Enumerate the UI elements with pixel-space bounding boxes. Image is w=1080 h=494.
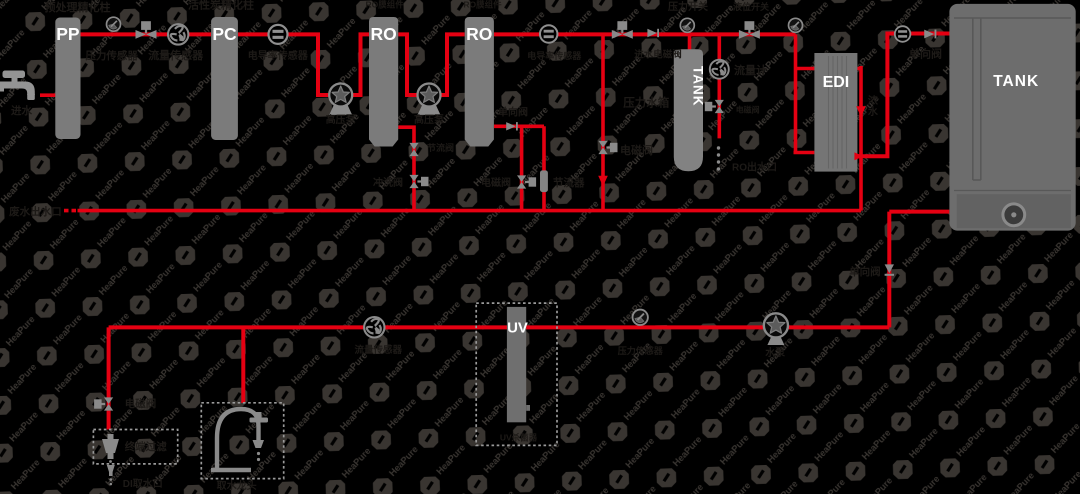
svg-text:终端过滤: 终端过滤 <box>125 440 167 453</box>
svg-text:EDI: EDI <box>823 74 850 91</box>
svg-text:压力水箱: 压力水箱 <box>623 96 669 110</box>
svg-text:电导率传感器: 电导率传感器 <box>527 50 582 61</box>
svg-text:压力传感器: 压力传感器 <box>618 345 664 356</box>
svg-text:高压泵: 高压泵 <box>326 113 357 126</box>
svg-text:单向阀: 单向阀 <box>909 47 942 61</box>
svg-text:液位开关: 液位开关 <box>733 1 769 12</box>
svg-text:高压泵: 高压泵 <box>414 113 445 126</box>
svg-text:进水电磁阀: 进水电磁阀 <box>634 49 682 61</box>
svg-text:TANK: TANK <box>993 73 1039 90</box>
svg-text:PC: PC <box>212 24 237 44</box>
svg-text:电导率传感器: 电导率传感器 <box>248 49 309 62</box>
svg-text:电磁阀: 电磁阀 <box>736 105 760 115</box>
svg-text:预处理精化柱: 预处理精化柱 <box>45 0 111 14</box>
svg-text:RO: RO <box>370 24 396 44</box>
svg-text:流量计: 流量计 <box>734 63 767 77</box>
svg-text:流量传感器: 流量传感器 <box>355 344 403 356</box>
svg-text:电磁阀: 电磁阀 <box>481 176 511 189</box>
svg-text:活性炭精化柱: 活性炭精化柱 <box>188 0 254 12</box>
svg-text:UV杀菌器: UV杀菌器 <box>500 433 538 443</box>
svg-text:单向阀: 单向阀 <box>498 106 528 119</box>
svg-text:电磁阀: 电磁阀 <box>125 397 157 410</box>
svg-text:DI取水口: DI取水口 <box>123 477 163 490</box>
svg-text:取水龙头: 取水龙头 <box>217 479 257 492</box>
svg-text:废水出水口: 废水出水口 <box>9 205 62 218</box>
svg-text:水泵: 水泵 <box>764 346 786 359</box>
svg-text:节流阀: 节流阀 <box>427 142 454 153</box>
svg-text:流量传感器: 流量传感器 <box>148 48 204 62</box>
svg-text:RO: RO <box>466 24 492 44</box>
svg-text:RO膜组件: RO膜组件 <box>463 0 502 10</box>
svg-text:TANK: TANK <box>691 66 706 107</box>
svg-text:浓: 浓 <box>868 94 879 107</box>
svg-text:电磁阀: 电磁阀 <box>620 143 653 157</box>
svg-text:PP: PP <box>56 24 80 44</box>
svg-text:单向阀: 单向阀 <box>849 265 881 278</box>
svg-text:节流器: 节流器 <box>553 176 585 189</box>
svg-text:UV: UV <box>507 320 528 337</box>
svg-text:RO出水口: RO出水口 <box>732 161 777 174</box>
svg-text:进水: 进水 <box>11 104 32 117</box>
svg-text:RO膜组件: RO膜组件 <box>365 0 404 10</box>
svg-text:压力传感器: 压力传感器 <box>85 49 138 62</box>
svg-text:水: 水 <box>867 105 879 118</box>
svg-text:压力开关: 压力开关 <box>668 0 708 13</box>
svg-text:冲洗阀: 冲洗阀 <box>373 176 403 189</box>
